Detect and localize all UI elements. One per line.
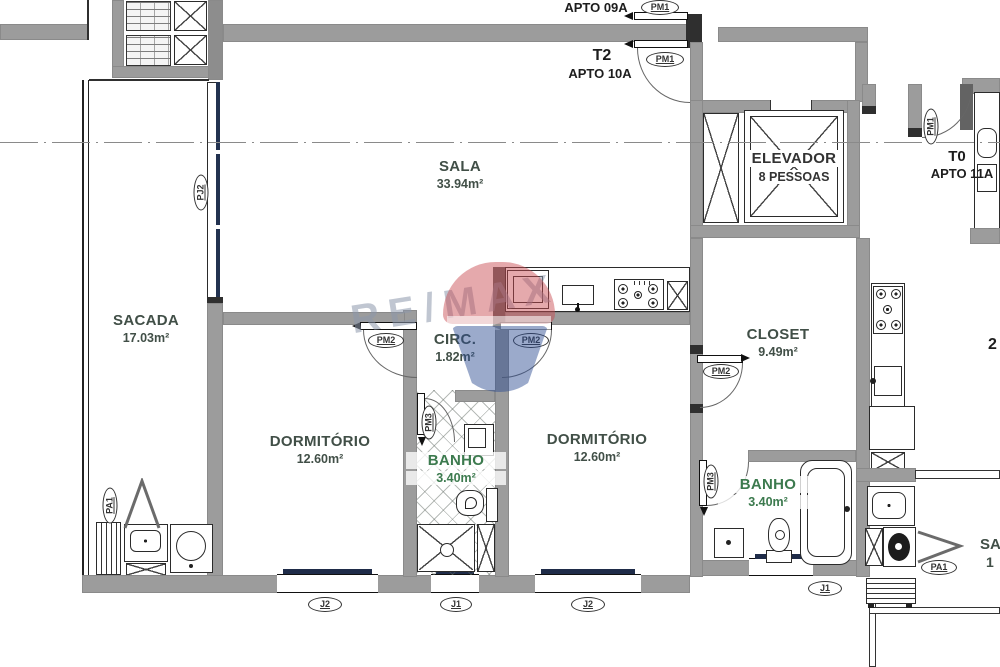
wall-stub bbox=[970, 228, 1000, 244]
shaft-brick-hatch bbox=[126, 1, 171, 31]
neighbor-sink-tap bbox=[870, 378, 876, 384]
door-arrow bbox=[492, 322, 501, 330]
wall-neighbor-service bbox=[856, 468, 916, 482]
door-leaf-dorm1 bbox=[360, 322, 417, 330]
door-tag-pa1: PA1 bbox=[103, 488, 118, 524]
apto10a-type: T2 bbox=[572, 47, 632, 65]
sink-tap-knob bbox=[575, 307, 580, 312]
stove-burner bbox=[876, 320, 886, 330]
wall-elevator-bottom bbox=[690, 225, 860, 238]
neighbor-duct bbox=[865, 528, 883, 566]
stove-burner bbox=[876, 289, 886, 299]
neighbor-washer-door bbox=[895, 543, 902, 550]
water-heater-cabinet bbox=[96, 522, 121, 575]
circ-label: CIRC. 1.82m² bbox=[405, 331, 505, 364]
door-arrow bbox=[700, 507, 708, 516]
window-glass bbox=[283, 569, 372, 574]
stove-burner-center bbox=[883, 305, 892, 314]
stove-burner bbox=[618, 298, 628, 308]
centerline bbox=[0, 142, 1000, 143]
neighbor-tank-basin bbox=[872, 492, 906, 519]
apto09a-label: APTO 09A bbox=[546, 0, 646, 15]
wall-elevator-right bbox=[847, 100, 860, 238]
banho1-washbasin-bowl bbox=[468, 428, 486, 448]
apto11a-label: APTO 11A bbox=[912, 166, 1000, 181]
shaft-duct bbox=[174, 1, 207, 31]
window-j2 bbox=[277, 574, 378, 593]
neighbor-sink bbox=[874, 366, 902, 396]
door-tag-pm1: PM1 bbox=[641, 0, 679, 15]
door-jamb bbox=[862, 106, 876, 114]
door-leaf-dorm2 bbox=[500, 322, 552, 330]
cropped-sacada-text: SA bbox=[980, 536, 1000, 553]
window-tag-j2: J2 bbox=[308, 597, 342, 612]
cropped-area-digit: 2 bbox=[988, 336, 997, 354]
wall-hall-left bbox=[690, 42, 703, 102]
kitchen-duct bbox=[667, 281, 688, 310]
washing-machine-drum bbox=[176, 531, 206, 561]
stove-burner bbox=[618, 284, 628, 294]
room-name: SACADA bbox=[91, 312, 201, 329]
neighbor-balcony-rail bbox=[869, 607, 1000, 614]
door-leaf-apto10a bbox=[634, 40, 688, 48]
balcony-railing bbox=[82, 80, 89, 578]
window-glass bbox=[541, 569, 635, 574]
glass-gap bbox=[216, 150, 220, 154]
room-name: DORMITÓRIO bbox=[265, 433, 375, 450]
stove-panel bbox=[630, 281, 650, 285]
room-area: 17.03m² bbox=[91, 331, 201, 345]
door-tag-pm2: PM2 bbox=[368, 333, 404, 348]
room-name: DORMITÓRIO bbox=[542, 431, 652, 448]
room-area: 9.49m² bbox=[723, 345, 833, 359]
window-tag-j1: J1 bbox=[440, 597, 472, 612]
door-tag-pm1: PM1 bbox=[646, 52, 684, 67]
window-tag-j2: J2 bbox=[571, 597, 605, 612]
folding-door bbox=[123, 478, 163, 530]
floor-plan: PM1 PM1 APTO 09A T2 APTO 10A ELEVADOR 8 … bbox=[0, 0, 1000, 667]
cabinet-foot bbox=[868, 604, 874, 608]
door-jamb bbox=[690, 345, 703, 354]
bathtub-faucet bbox=[844, 506, 850, 512]
stove-burner-center bbox=[634, 291, 642, 299]
wall-banho1-top bbox=[455, 390, 495, 402]
door-tag-pm1: PM1 bbox=[924, 109, 939, 145]
room-area: 1.82m² bbox=[405, 350, 505, 364]
banho1-toilet-bowl bbox=[465, 497, 477, 509]
room-area: 12.60m² bbox=[542, 450, 652, 464]
wall-elevator-left bbox=[690, 100, 703, 238]
wall-edge bbox=[87, 0, 89, 40]
folding-door bbox=[916, 530, 964, 564]
elevator-capacity: 8 PESSOAS bbox=[757, 170, 832, 184]
room-area: 3.40m² bbox=[718, 495, 818, 509]
wall-shaft-right bbox=[208, 0, 223, 80]
apto10a-label: APTO 10A bbox=[550, 66, 650, 81]
dormitorio1-label: DORMITÓRIO 12.60m² bbox=[265, 433, 375, 466]
elevator-name: ELEVADOR bbox=[750, 150, 839, 167]
stove-burner bbox=[891, 289, 901, 299]
neighbor-louver-cabinet bbox=[866, 578, 916, 604]
sala-label: SALA 33.94m² bbox=[405, 158, 515, 191]
room-name: BANHO bbox=[718, 476, 818, 493]
cropped-sacada-area: 1 bbox=[986, 554, 994, 570]
wall-top-left bbox=[0, 24, 88, 40]
door-tag-pa1: PA1 bbox=[921, 560, 957, 575]
banho1-duct bbox=[477, 524, 495, 572]
room-name: BANHO bbox=[406, 452, 506, 469]
wall-corridor-right bbox=[718, 27, 868, 42]
window-tag-j1: J1 bbox=[808, 581, 842, 596]
elevator-shaft-duct bbox=[703, 113, 739, 223]
banho1-shelf bbox=[486, 488, 498, 522]
wall-corridor bbox=[223, 24, 688, 42]
stove-burner bbox=[648, 298, 658, 308]
shaft-brick-hatch bbox=[126, 35, 171, 66]
stove-burner bbox=[648, 284, 658, 294]
glass-gap bbox=[216, 225, 220, 229]
elevator-label: ELEVADOR 8 PESSOAS bbox=[746, 150, 842, 186]
sacada-label: SACADA 17.03m² bbox=[91, 312, 201, 345]
balcony-top-line bbox=[89, 79, 209, 81]
room-area: 33.94m² bbox=[405, 177, 515, 191]
laundry-tank-basin bbox=[130, 530, 161, 552]
stove-burner bbox=[891, 320, 901, 330]
glass-door-pane bbox=[216, 82, 220, 305]
neighbor-wall-thin bbox=[915, 470, 1000, 479]
shower-drain bbox=[440, 543, 454, 557]
door-tag-pm3: PM3 bbox=[422, 406, 437, 440]
banho2-sink-drain bbox=[726, 540, 731, 545]
room-name: CIRC. bbox=[405, 331, 505, 348]
shaft-duct bbox=[174, 35, 207, 65]
washer-knob bbox=[189, 564, 193, 568]
door-tag-pm2: PM2 bbox=[703, 364, 739, 379]
room-name: CLOSET bbox=[723, 326, 833, 343]
apto11a-type: T0 bbox=[927, 148, 987, 165]
wall-kitchen-post bbox=[493, 267, 505, 327]
room-area: 12.60m² bbox=[265, 452, 375, 466]
room-name: SALA bbox=[405, 158, 515, 175]
window-j2 bbox=[535, 574, 641, 593]
cabinet-foot bbox=[906, 604, 912, 608]
kitchen-cabinet-inner bbox=[513, 276, 543, 303]
door-tag-pj2: PJ2 bbox=[194, 175, 209, 211]
wall-shaft-bottom bbox=[112, 66, 223, 78]
room-area: 3.40m² bbox=[406, 471, 506, 485]
kitchen-sink bbox=[562, 285, 594, 305]
door-arrow bbox=[352, 322, 361, 330]
door-jamb bbox=[908, 128, 922, 137]
wall-closet-east bbox=[856, 238, 870, 577]
banho2-toilet-bowl bbox=[775, 530, 785, 540]
banho2-label: BANHO 3.40m² bbox=[718, 476, 818, 509]
wall-t0 bbox=[908, 84, 922, 134]
door-arrow bbox=[418, 437, 426, 446]
wall-shaft-left bbox=[112, 0, 124, 70]
door-tag-pm3: PM3 bbox=[704, 465, 719, 499]
neighbor-cabinet bbox=[869, 406, 915, 450]
door-tag-pm2: PM2 bbox=[513, 333, 549, 348]
dormitorio2-label: DORMITÓRIO 12.60m² bbox=[542, 431, 652, 464]
banho1-label: BANHO 3.40m² bbox=[406, 452, 506, 485]
window-j1 bbox=[431, 574, 479, 593]
closet-label: CLOSET 9.49m² bbox=[723, 326, 833, 359]
